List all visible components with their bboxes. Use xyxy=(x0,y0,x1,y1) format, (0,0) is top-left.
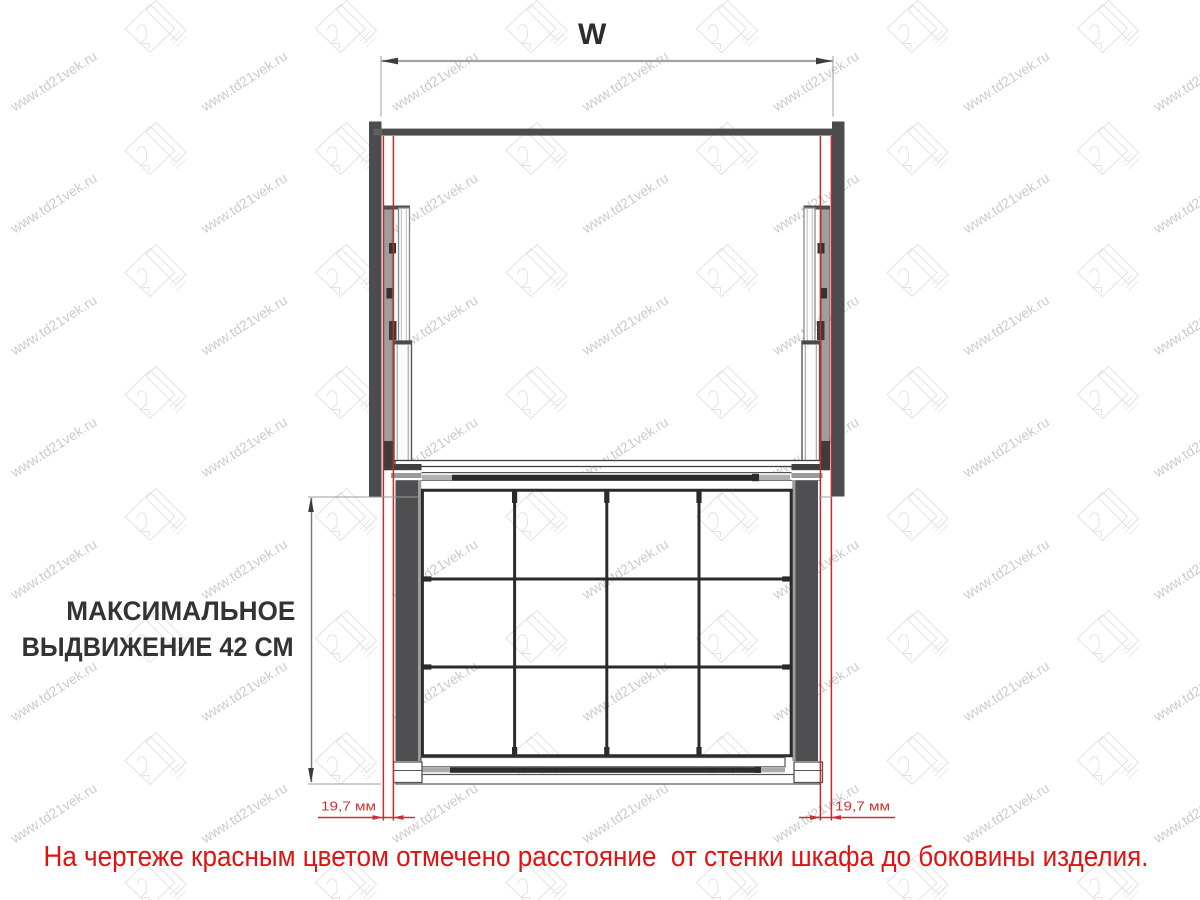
svg-text:На чертеже красным цветом отме: На чертеже красным цветом отмечено расст… xyxy=(44,841,1149,873)
svg-text:19,7 мм: 19,7 мм xyxy=(321,799,376,814)
svg-text:МАКСИМАЛЬНОЕ: МАКСИМАЛЬНОЕ xyxy=(66,596,295,626)
svg-text:19,7 мм: 19,7 мм xyxy=(835,799,890,814)
svg-text:W: W xyxy=(578,18,607,51)
svg-text:ВЫДВИЖЕНИЕ 42 СМ: ВЫДВИЖЕНИЕ 42 СМ xyxy=(22,632,294,662)
